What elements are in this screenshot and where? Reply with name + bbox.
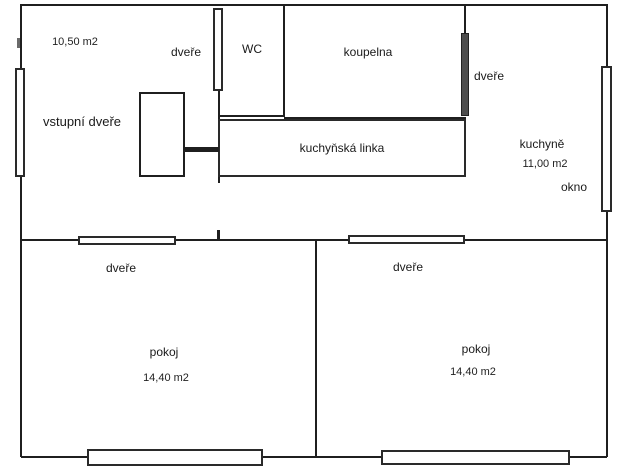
room-right-door-label: dveře	[393, 261, 423, 274]
room-left-area-label: 14,40 m2	[143, 372, 189, 384]
kitchen-window-label: okno	[561, 181, 587, 194]
entrance-door	[15, 68, 25, 177]
rooms-divider-wall	[315, 240, 317, 456]
room-right-door	[348, 235, 465, 244]
hall-area-label: 10,50 m2	[52, 36, 98, 48]
entrance-door-label: vstupní dveře	[43, 115, 121, 129]
room-left-window	[87, 449, 263, 466]
room-right-area-label: 14,40 m2	[450, 366, 496, 378]
wc-bathroom-wall	[283, 5, 285, 117]
left-wall-tick	[17, 38, 20, 48]
bathroom-label: koupelna	[344, 46, 393, 59]
room-left-door-label: dveře	[106, 262, 136, 275]
kitchen-area-label: 11,00 m2	[522, 158, 567, 170]
kitchen-label: kuchyně	[520, 138, 565, 151]
room-right-label: pokoj	[462, 343, 491, 356]
bathroom-right-wall	[464, 5, 466, 34]
bathroom-door-label: dveře	[474, 70, 504, 83]
wc-bottom-wall	[218, 115, 284, 117]
hall-wc-door	[213, 8, 223, 91]
kitchen-counter: kuchyňská linka	[218, 119, 466, 177]
wc-label: WC	[242, 43, 262, 56]
hall-wall-stub-tick	[217, 230, 220, 240]
kitchen-window	[601, 66, 612, 212]
room-left-label: pokoj	[150, 346, 179, 359]
kitchen-counter-label: kuchyňská linka	[300, 141, 385, 155]
top-wall	[21, 4, 607, 6]
kitchen-fixture	[139, 92, 185, 177]
room-right-window	[381, 450, 570, 465]
bathroom-door	[461, 33, 469, 116]
fixture-connector	[183, 147, 219, 152]
floor-plan: kuchyňská linka 10,50 m2 dveře WC koupel…	[0, 0, 635, 476]
hall-door-label: dveře	[171, 46, 201, 59]
room-left-door	[78, 236, 176, 245]
